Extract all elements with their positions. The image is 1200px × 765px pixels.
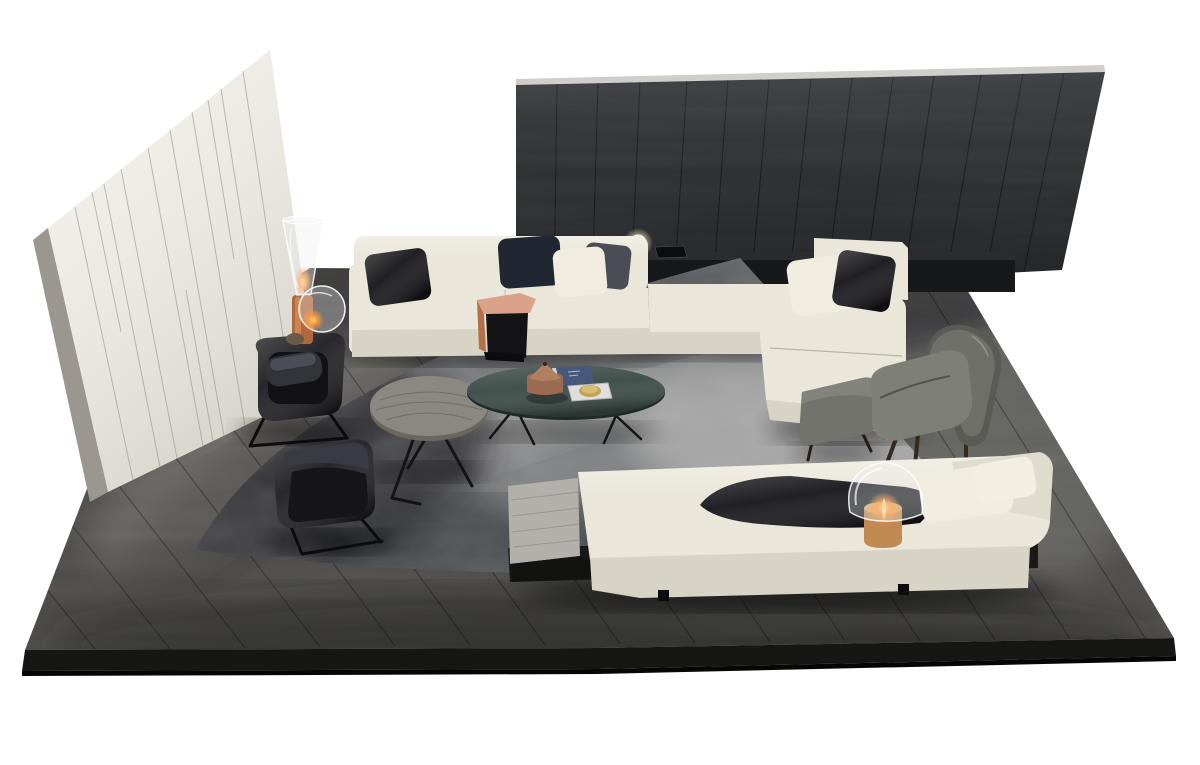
console-top-face <box>585 252 1015 260</box>
daybed-foot-left <box>658 590 669 601</box>
decor-tray <box>568 383 612 401</box>
console-tray <box>655 246 687 258</box>
scene-canvas <box>0 0 1200 765</box>
daybed-foot-right <box>898 584 909 595</box>
showroom-scene <box>0 0 1200 765</box>
armchair-lower-seat <box>288 467 368 522</box>
bubble-lamp-stone <box>286 333 304 345</box>
pillow-black-chaise-sheen <box>831 249 897 313</box>
side-table-support <box>486 313 528 358</box>
brass-dish-highlight <box>582 386 598 394</box>
pillow-cream-left <box>552 246 608 298</box>
bowl-finial <box>543 362 547 366</box>
pillow-black-left-sheen <box>364 247 433 307</box>
round-table-shadow <box>372 462 488 482</box>
daybed-end-table-top <box>508 478 580 564</box>
cone-lamp-rim <box>283 216 324 224</box>
bubble-lamp-glow <box>302 309 324 331</box>
daybed <box>508 452 1053 601</box>
pillow-navy <box>497 235 562 289</box>
